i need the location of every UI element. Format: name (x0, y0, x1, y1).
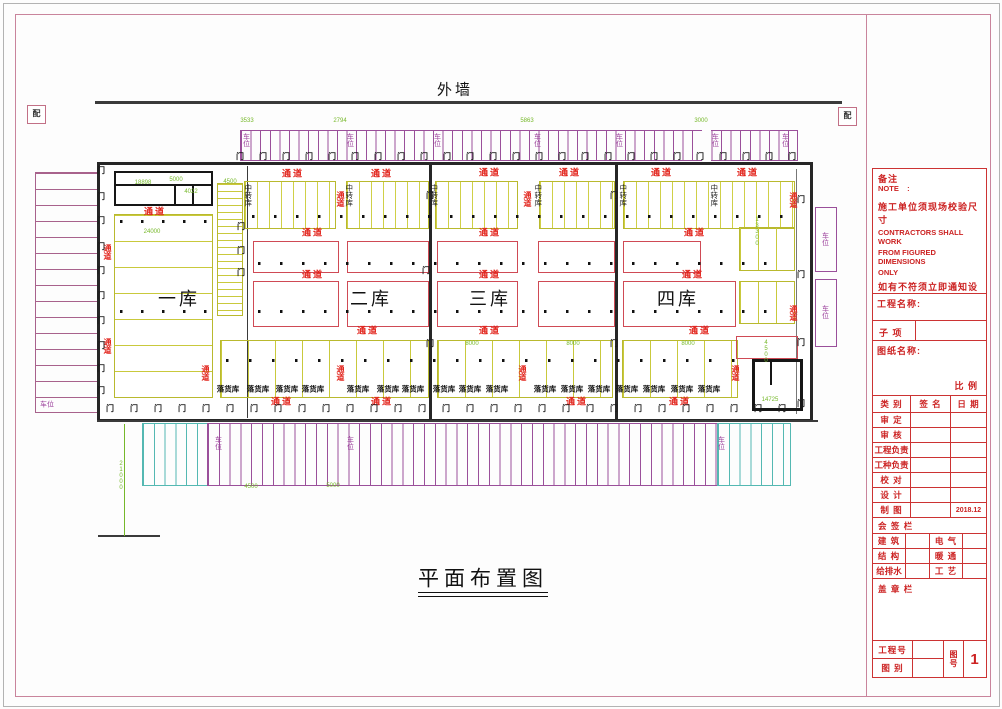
column-dots-row (258, 310, 786, 313)
corridor-label: 通道 (336, 365, 344, 381)
drop-room-label: 落货库 (698, 385, 721, 393)
door-icon: 门 (97, 317, 105, 325)
door-icon: 门 (627, 153, 635, 161)
role-label: 工种负责 (873, 458, 911, 472)
parking-label: 车位 (534, 133, 541, 147)
drop-room-label: 落货库 (486, 385, 509, 393)
date-cell (951, 473, 986, 487)
door-icon: 门 (562, 405, 570, 413)
corridor-label: 通道 (302, 229, 324, 238)
discipline-label: 电 气 (930, 534, 963, 548)
sign-row: 制 图2018.12 (873, 503, 986, 518)
door-icon: 门 (394, 405, 402, 413)
ground-line (97, 420, 818, 422)
door-icon: 门 (305, 153, 313, 161)
dimension-label: 5000 (326, 483, 339, 489)
dimension-label: 21000 (118, 461, 124, 491)
corridor-label: 通道 (479, 229, 501, 238)
parking-label: 车位 (712, 133, 719, 147)
discipline-sign-cell (963, 534, 986, 548)
drawing-area: 外墙 配 配 (0, 0, 866, 709)
door-icon: 门 (442, 405, 450, 413)
column-dots-row (120, 310, 212, 313)
signature-cell (911, 503, 951, 517)
discipline-sign-cell (963, 549, 986, 563)
storage-row (538, 241, 615, 273)
door-icon: 门 (274, 405, 282, 413)
door-icon: 门 (696, 153, 704, 161)
door-icon: 门 (97, 292, 105, 300)
corridor-label: 通道 (689, 327, 711, 336)
door-icon: 门 (512, 153, 520, 161)
door-icon: 门 (650, 153, 658, 161)
signature-cell (911, 458, 951, 472)
drop-room-label: 落货库 (534, 385, 557, 393)
project-no-cell (913, 641, 943, 659)
project-name-label: 工程名称: (877, 297, 921, 310)
dimension-label: 13300 (754, 217, 760, 247)
parking-strip-bottom-purple (207, 423, 719, 486)
door-icon: 门 (97, 342, 105, 350)
door-icon: 门 (797, 400, 805, 408)
parking-label: 车位 (434, 133, 441, 147)
door-icon: 门 (420, 153, 428, 161)
stamp-box: 盖 章 栏 (873, 579, 986, 641)
drop-room-label: 落货库 (588, 385, 611, 393)
transfer-room-label: 中转库 (619, 184, 627, 207)
door-icon: 门 (610, 192, 618, 200)
header-signature: 签 名 (911, 396, 951, 412)
drop-room-label: 落货库 (402, 385, 425, 393)
draw-date: 2018.12 (951, 503, 986, 517)
storage-row (253, 281, 339, 327)
rack-band (623, 181, 795, 229)
note-line: ONLY (878, 268, 984, 277)
dimension-base-line (98, 535, 160, 537)
door-icon: 门 (490, 405, 498, 413)
firewall-2 (615, 162, 618, 422)
door-icon: 门 (634, 405, 642, 413)
door-icon: 门 (538, 405, 546, 413)
discipline-label: 给排水 (873, 564, 906, 578)
scale-label: 比 例 (954, 379, 978, 392)
note-line: 施工单位须现场校验尺寸 (878, 200, 984, 226)
sub-item-divider (915, 321, 916, 341)
drawing-no-label: 图号 (944, 641, 964, 677)
warehouse-label: 二库 (350, 290, 392, 308)
door-icon: 门 (328, 153, 336, 161)
discipline-sign-cell (906, 534, 930, 548)
signature-cell (911, 443, 951, 457)
door-icon: 门 (97, 167, 105, 175)
door-icon: 门 (97, 365, 105, 373)
discipline-label: 建 筑 (873, 534, 906, 548)
door-icon: 门 (706, 405, 714, 413)
door-icon: 门 (586, 405, 594, 413)
exterior-wall-label: 外墙 (437, 84, 473, 99)
discipline-sign-cell (906, 549, 930, 563)
discipline-label: 工 艺 (930, 564, 963, 578)
corridor-label: 通道 (559, 169, 581, 178)
discipline-sign-cell (963, 564, 986, 578)
role-label: 审 定 (873, 413, 911, 427)
dimension-label: 8000 (681, 341, 694, 347)
parking-label: 车位 (782, 133, 789, 147)
rack-band (346, 181, 429, 229)
storage-row (538, 281, 615, 327)
dimension-label: 8000 (566, 341, 579, 347)
door-icon: 门 (422, 267, 430, 275)
column-dots-row (252, 215, 790, 218)
door-icon: 门 (397, 153, 405, 161)
door-icon: 门 (259, 153, 267, 161)
storage-row (253, 241, 339, 273)
stamp-label: 盖 章 栏 (873, 579, 913, 640)
signature-cell (911, 428, 951, 442)
table-header-row: 类 别 签 名 日 期 (873, 396, 986, 413)
office-rooms (114, 171, 213, 206)
corridor-label: 通道 (144, 208, 166, 217)
door-icon: 门 (250, 405, 258, 413)
exterior-wall-line (95, 101, 842, 104)
signature-cell (911, 473, 951, 487)
door-icon: 门 (514, 405, 522, 413)
dimension-label: 3533 (240, 118, 253, 124)
corridor-label: 通道 (518, 365, 526, 381)
sign-row: 设 计 (873, 488, 986, 503)
drop-room-label: 落货库 (643, 385, 666, 393)
dimension-label: 5000 (169, 177, 182, 183)
header-date: 日 期 (951, 396, 986, 412)
parking-label: 车位 (718, 436, 725, 450)
door-icon: 门 (673, 153, 681, 161)
door-icon: 门 (298, 405, 306, 413)
corridor-label: 通道 (684, 229, 706, 238)
date-cell (951, 488, 986, 502)
parking-label: 车位 (40, 402, 54, 409)
drop-room-label: 落货库 (347, 385, 370, 393)
corridor-label: 通道 (651, 169, 673, 178)
corridor-label: 通道 (302, 271, 324, 280)
sign-row: 工程负责 (873, 443, 986, 458)
rack-band (435, 181, 518, 229)
transfer-room-label: 中转库 (345, 184, 353, 207)
dimension-vertical-line (124, 424, 125, 536)
parking-label: 车位 (243, 133, 250, 147)
dimension-label: 4500 (244, 484, 257, 490)
door-icon: 门 (370, 405, 378, 413)
drawing-sheet: 外墙 配 配 (0, 0, 1002, 709)
signature-table: 类 别 签 名 日 期 审 定 审 核 工程负责 工种负责 校 对 设 计 制 … (872, 395, 987, 678)
date-cell (951, 458, 986, 472)
project-no-label: 工程号 (873, 641, 912, 659)
dimension-label: 18898 (135, 180, 152, 186)
parking-strip-left (35, 172, 98, 413)
door-icon: 门 (226, 405, 234, 413)
discipline-sign-cell (906, 564, 930, 578)
door-icon: 门 (154, 405, 162, 413)
door-icon: 门 (719, 153, 727, 161)
door-icon: 门 (797, 196, 805, 204)
drop-room-label: 落货库 (561, 385, 584, 393)
drop-room-label: 落货库 (302, 385, 325, 393)
parking-strip-bottom-teal-left (142, 423, 209, 486)
discipline-row: 建 筑电 气 (873, 534, 986, 549)
corridor-label: 通道 (737, 169, 759, 178)
project-name-box: 工程名称: (872, 293, 987, 322)
note-box: 备注 NOTE : 施工单位须现场校验尺寸CONTRACTORS SHALL W… (872, 168, 987, 295)
power-box-marker-right: 配 (838, 107, 857, 126)
utility-room-partition (770, 359, 772, 385)
storage-row (623, 241, 701, 273)
door-icon: 门 (374, 153, 382, 161)
transfer-room-label: 中转库 (710, 184, 718, 207)
dimension-label: 24000 (144, 229, 161, 235)
title-block-separator (866, 14, 867, 696)
door-icon: 门 (754, 405, 762, 413)
parking-label: 车位 (215, 436, 222, 450)
dimension-label: 3000 (694, 118, 707, 124)
number-block: 工程号 图 别 图号 1 (873, 641, 986, 677)
door-icon: 门 (282, 153, 290, 161)
plan-title: 平面布置图 (418, 569, 548, 590)
role-label: 设 计 (873, 488, 911, 502)
role-label: 制 图 (873, 503, 911, 517)
corridor-label: 通道 (731, 365, 739, 381)
drop-room-label: 落货库 (616, 385, 639, 393)
discipline-label: 暖 通 (930, 549, 963, 563)
rack-band (244, 181, 336, 229)
door-icon: 门 (558, 153, 566, 161)
drawing-no-value: 1 (964, 641, 986, 677)
sub-item-row: 子 项 (872, 320, 987, 342)
plan-title-underline-1 (418, 592, 548, 593)
door-icon: 门 (236, 153, 244, 161)
parking-label: 车位 (822, 305, 829, 319)
column-dots-row (120, 220, 212, 223)
role-label: 工程负责 (873, 443, 911, 457)
door-icon: 门 (346, 405, 354, 413)
plan-title-underline-2 (418, 596, 548, 597)
transfer-room-label: 中转库 (534, 184, 542, 207)
parking-label: 车位 (822, 232, 829, 246)
door-icon: 门 (178, 405, 186, 413)
dimension-label: 4500 (223, 179, 236, 185)
office-partition-v1 (174, 186, 176, 205)
door-icon: 门 (797, 339, 805, 347)
note-line: CONTRACTORS SHALL WORK (878, 228, 984, 246)
door-icon: 门 (797, 271, 805, 279)
countersign-label: 会 签 栏 (873, 518, 986, 533)
sign-row: 审 核 (873, 428, 986, 443)
signature-cell (911, 488, 951, 502)
door-icon: 门 (742, 153, 750, 161)
role-label: 校 对 (873, 473, 911, 487)
door-icon: 门 (581, 153, 589, 161)
note-line: FROM FIGURED DIMENSIONS (878, 248, 984, 266)
corridor-label: 通道 (371, 170, 393, 179)
date-cell (951, 413, 986, 427)
dimension-label: 14725 (762, 397, 779, 403)
corridor-label: 通道 (479, 169, 501, 178)
door-icon: 门 (443, 153, 451, 161)
door-icon: 门 (237, 269, 245, 277)
power-box-marker-left: 配 (27, 105, 46, 124)
discipline-row: 给排水工 艺 (873, 564, 986, 579)
warehouse-label: 三库 (469, 290, 511, 308)
door-icon: 门 (97, 193, 105, 201)
transfer-room-label: 中转库 (244, 184, 252, 207)
door-icon: 门 (788, 153, 796, 161)
storage-row (437, 241, 518, 273)
date-cell (951, 428, 986, 442)
dimension-label: 2794 (333, 118, 346, 124)
sign-row: 校 对 (873, 473, 986, 488)
corridor-label: 通道 (201, 365, 209, 381)
dimension-label: 8000 (465, 341, 478, 347)
door-icon: 门 (322, 405, 330, 413)
storage-rack-right-2 (739, 281, 795, 324)
door-icon: 门 (202, 405, 210, 413)
rack-band (539, 181, 615, 229)
discipline-row: 结 构暖 通 (873, 549, 986, 564)
drop-room-label: 落货库 (377, 385, 400, 393)
door-icon: 门 (426, 340, 434, 348)
parking-label: 车位 (347, 436, 354, 450)
parking-strip-bottom-teal-right (717, 423, 791, 486)
corridor-label: 通道 (523, 191, 531, 207)
corridor-label: 通道 (336, 191, 344, 207)
warehouse-label: 一库 (158, 290, 200, 308)
dimension-label: 5863 (520, 118, 533, 124)
role-label: 审 核 (873, 428, 911, 442)
dimension-label: 4500 (763, 340, 769, 364)
sign-row: 审 定 (873, 413, 986, 428)
drop-room-label: 落货库 (276, 385, 299, 393)
drop-room-label: 落货库 (433, 385, 456, 393)
door-icon: 门 (237, 247, 245, 255)
corridor-label: 通道 (282, 170, 304, 179)
column-dots-row (258, 262, 786, 265)
door-icon: 门 (730, 405, 738, 413)
door-icon: 门 (237, 223, 245, 231)
door-icon: 门 (610, 340, 618, 348)
office-partition-h (114, 184, 213, 186)
drop-room-label: 落货库 (217, 385, 240, 393)
sign-row: 工种负责 (873, 458, 986, 473)
parking-label: 车位 (347, 133, 354, 147)
signature-cell (911, 413, 951, 427)
drawing-type-cell (913, 659, 943, 676)
drop-room-label: 落货库 (459, 385, 482, 393)
dimension-label: 4022 (184, 189, 197, 195)
date-cell (951, 443, 986, 457)
corridor-label: 通道 (357, 327, 379, 336)
door-icon: 门 (765, 153, 773, 161)
header-category: 类 别 (873, 396, 911, 412)
drop-room-label: 落货库 (247, 385, 270, 393)
corridor-label: 通道 (789, 305, 797, 321)
door-icon: 门 (466, 405, 474, 413)
sub-item-label: 子 项 (879, 326, 903, 339)
note-en: NOTE : (878, 184, 910, 193)
door-icon: 门 (778, 405, 786, 413)
column-dots-row (226, 359, 746, 362)
door-icon: 门 (682, 405, 690, 413)
drawing-name-box: 图纸名称: 比 例 (872, 340, 987, 397)
door-icon: 门 (97, 387, 105, 395)
drawing-name-label: 图纸名称: (877, 344, 921, 357)
door-icon: 门 (466, 153, 474, 161)
door-icon: 门 (535, 153, 543, 161)
storage-row (347, 241, 429, 273)
door-icon: 门 (106, 405, 114, 413)
corridor-label: 通道 (682, 271, 704, 280)
door-icon: 门 (97, 267, 105, 275)
corridor-label: 通道 (479, 271, 501, 280)
door-icon: 门 (418, 405, 426, 413)
door-icon: 门 (658, 405, 666, 413)
corridor-label: 通道 (479, 327, 501, 336)
door-icon: 门 (604, 153, 612, 161)
door-icon: 门 (351, 153, 359, 161)
corridor-label: 通道 (789, 192, 797, 208)
door-icon: 门 (610, 405, 618, 413)
door-icon: 门 (97, 217, 105, 225)
drawing-type-label: 图 别 (873, 659, 912, 676)
parking-label: 车位 (616, 133, 623, 147)
door-icon: 门 (130, 405, 138, 413)
door-icon: 门 (97, 243, 105, 251)
countersign-row: 会 签 栏 (873, 518, 986, 534)
drop-room-label: 落货库 (671, 385, 694, 393)
warehouse-label: 四库 (657, 290, 699, 308)
door-icon: 门 (426, 192, 434, 200)
door-icon: 门 (489, 153, 497, 161)
discipline-label: 结 构 (873, 549, 906, 563)
